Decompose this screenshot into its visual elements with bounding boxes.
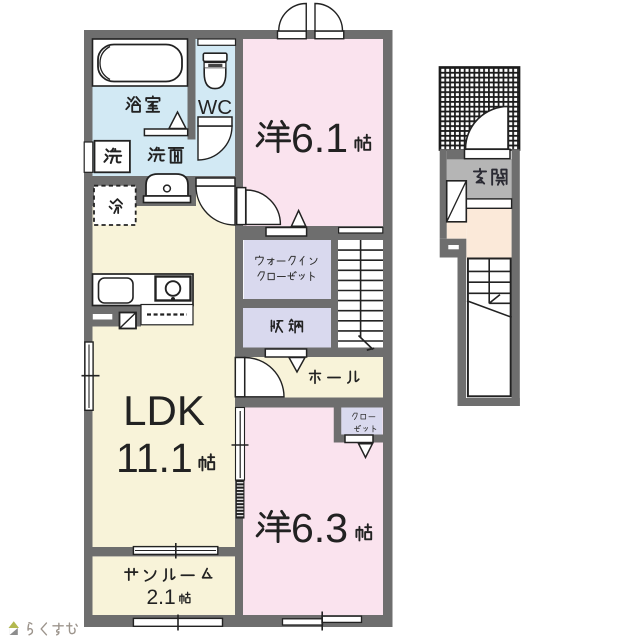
svg-text:WC: WC: [198, 96, 232, 119]
svg-text:LDK: LDK: [123, 387, 205, 434]
svg-text:2.1: 2.1: [147, 586, 176, 609]
svg-text:6.1: 6.1: [291, 115, 348, 161]
svg-text:6.3: 6.3: [291, 505, 348, 551]
svg-text:11.1: 11.1: [116, 435, 193, 481]
